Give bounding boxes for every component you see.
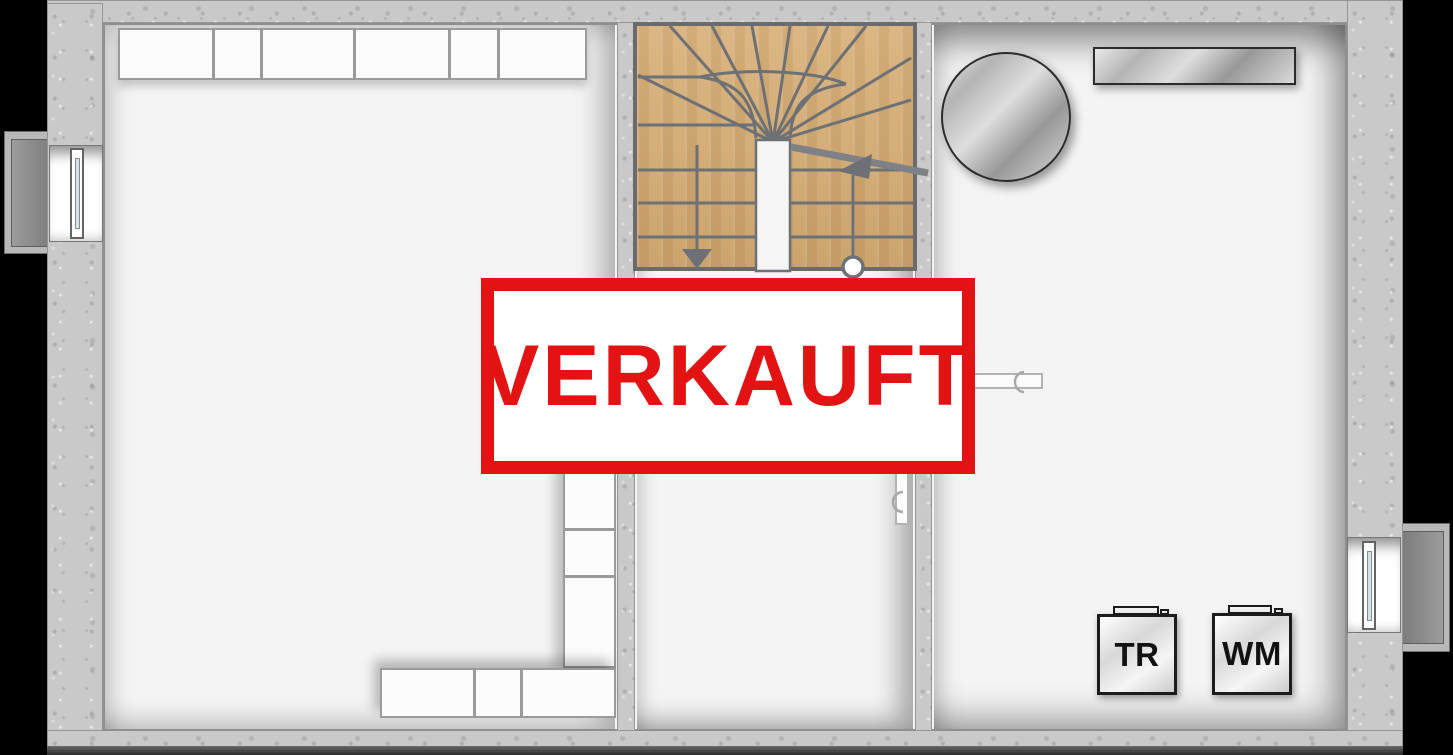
wall-mounted-shelf xyxy=(1093,47,1296,85)
window-right-glass xyxy=(1367,551,1372,621)
l-shelf-vertical xyxy=(563,452,616,668)
window-left-glass xyxy=(75,158,80,229)
staircase xyxy=(633,22,917,271)
wall-right xyxy=(1347,0,1403,747)
round-tank xyxy=(941,52,1071,182)
appliance-dryer: TR xyxy=(1097,614,1177,695)
shelf-divider xyxy=(565,528,614,531)
dryer-label: TR xyxy=(1115,636,1160,674)
washer-label: WM xyxy=(1222,635,1282,673)
wall-top xyxy=(47,0,1403,23)
shelf-divider xyxy=(473,670,476,716)
basement-floor-plan: TR WM xyxy=(0,0,1453,755)
wall-bottom-edge xyxy=(47,746,1403,755)
wall-bottom xyxy=(47,730,1403,747)
shelf-divider xyxy=(260,30,263,78)
shelf-divider xyxy=(212,30,215,78)
shelf-divider xyxy=(353,30,356,78)
light-well-right-pit xyxy=(1402,531,1444,644)
appliance-washer: WM xyxy=(1212,613,1292,695)
sold-stamp: VERKAUFT xyxy=(481,278,975,474)
wall-left xyxy=(47,3,103,747)
light-well-left-pit xyxy=(11,139,52,247)
sold-stamp-label: VERKAUFT xyxy=(482,333,974,419)
shelf-divider xyxy=(497,30,500,78)
l-shelf-horizontal xyxy=(380,668,616,718)
shelf-divider xyxy=(520,670,523,716)
top-shelf-run xyxy=(118,28,587,80)
shelf-divider xyxy=(565,575,614,578)
shelf-divider xyxy=(448,30,451,78)
